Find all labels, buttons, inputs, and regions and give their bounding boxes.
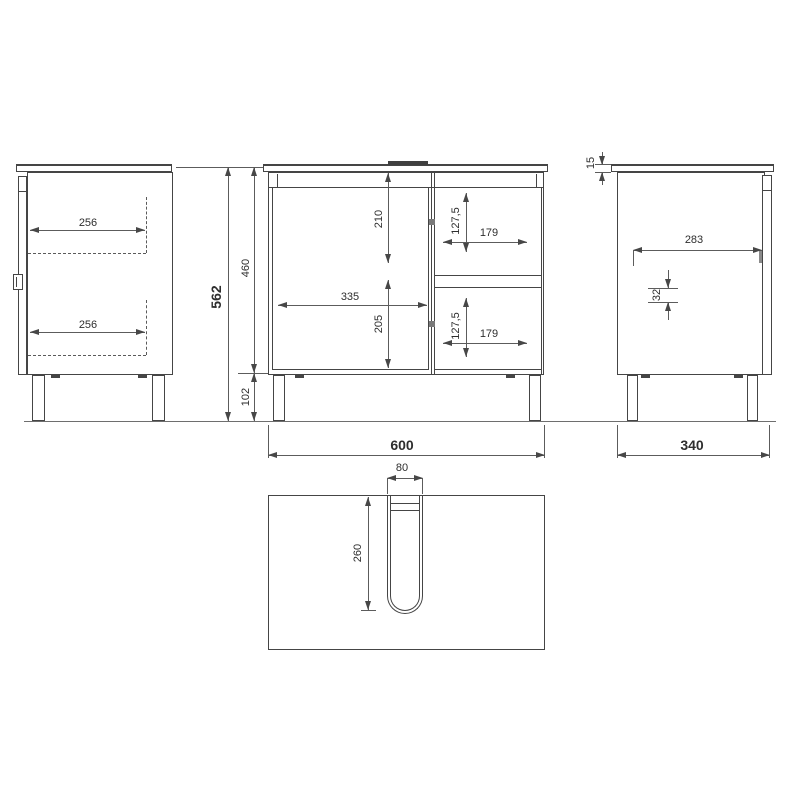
divider-line — [431, 172, 432, 375]
top-rail-tick — [536, 174, 537, 187]
countertop — [611, 164, 774, 172]
door-handle — [13, 274, 23, 290]
cutout-wall-outer-left — [387, 495, 388, 594]
dim-arrow — [268, 452, 277, 458]
dim-arrow — [225, 167, 231, 176]
hinge-mark — [429, 321, 435, 327]
dim-label-460: 460 — [239, 246, 253, 290]
dim-arrow — [385, 280, 391, 289]
door-right-edge — [428, 187, 429, 370]
dim-arrow — [463, 193, 469, 202]
dim-line-256-top — [30, 230, 145, 231]
countertop — [16, 164, 172, 172]
dim-arrow — [385, 173, 391, 182]
door-edge-step — [762, 190, 772, 191]
dim-arrow — [761, 452, 770, 458]
cabinet-body — [27, 172, 173, 375]
dim-label-210: 210 — [372, 197, 386, 241]
dim-arrow — [385, 254, 391, 263]
foot-mark — [295, 375, 304, 378]
dim-label-335: 335 — [320, 290, 380, 304]
leg — [273, 375, 285, 421]
dim-line-283 — [633, 250, 762, 251]
dim-label-179-bottom: 179 — [464, 327, 514, 341]
ground-line — [24, 421, 776, 422]
cutout-wall-outer-right — [422, 495, 423, 594]
dim-line-205 — [388, 280, 389, 368]
dim-arrow — [463, 298, 469, 307]
drawer-top-hidden-line-h — [28, 253, 146, 254]
cutout-wall-inner-right — [419, 495, 420, 594]
door-edge-panel — [762, 175, 772, 375]
dim-arrow — [365, 601, 371, 610]
extension-line-283 — [633, 250, 634, 266]
dim-arrow — [518, 340, 527, 346]
dim-arrow — [365, 497, 371, 506]
drawer2-top-edge — [435, 287, 542, 288]
foot-mark — [734, 375, 743, 378]
leg — [152, 375, 165, 421]
dim-line-600 — [268, 455, 545, 456]
dim-label-256-bottom: 256 — [58, 318, 118, 332]
dim-line-210 — [388, 173, 389, 263]
dim-arrow — [599, 172, 605, 181]
drawer2-bottom-edge — [435, 369, 542, 370]
top-rail-line — [269, 187, 543, 188]
cutout-cross-line — [391, 503, 419, 504]
drawer-bottom-hidden-line-v — [146, 300, 147, 355]
door-bottom-edge — [272, 369, 429, 370]
dim-arrow — [753, 247, 762, 253]
dim-label-32: 32 — [650, 273, 664, 317]
dim-line-340 — [617, 455, 770, 456]
dim-arrow — [518, 239, 527, 245]
dim-arrow — [463, 243, 469, 252]
door-handle-line — [16, 277, 17, 287]
dim-label-260: 260 — [351, 531, 365, 575]
technical-drawing-canvas: 256 256 562 460 102 — [0, 0, 800, 800]
dim-label-127-top: 127,5 — [449, 199, 463, 243]
dim-arrow — [385, 359, 391, 368]
dim-line-460-102 — [254, 167, 255, 421]
drawer-right-edge — [541, 187, 542, 375]
foot-mark — [51, 375, 60, 378]
faucet-hole-mark — [388, 161, 428, 165]
dim-label-102: 102 — [239, 375, 253, 419]
dim-line-260 — [368, 497, 369, 610]
leg — [32, 375, 45, 421]
dim-label-562: 562 — [208, 275, 224, 319]
countertop — [263, 164, 548, 172]
dim-arrow — [665, 279, 671, 288]
dim-label-600: 600 — [372, 437, 432, 453]
bottom-panel — [268, 495, 545, 650]
foot-mark — [506, 375, 515, 378]
dim-label-205: 205 — [372, 302, 386, 346]
extension-line-top — [176, 167, 263, 168]
dim-label-15: 15 — [584, 141, 598, 185]
foot-mark — [138, 375, 147, 378]
dim-arrow — [225, 412, 231, 421]
dim-arrow — [633, 247, 642, 253]
dim-arrow — [418, 302, 427, 308]
dim-line-179-bottom — [443, 343, 527, 344]
dim-arrow — [136, 227, 145, 233]
dim-label-283: 283 — [664, 233, 724, 247]
foot-mark — [641, 375, 650, 378]
extension-line-260 — [361, 610, 376, 611]
dim-arrow — [665, 302, 671, 311]
dim-label-179-top: 179 — [464, 226, 514, 240]
leg — [529, 375, 541, 421]
dim-label-80: 80 — [382, 461, 422, 475]
extension-line-80-right — [422, 478, 423, 494]
top-rail-tick — [277, 174, 278, 187]
dim-arrow — [443, 239, 452, 245]
dim-arrow — [599, 156, 605, 165]
cutout-cross-line — [391, 510, 419, 511]
cabinet-body — [268, 172, 544, 375]
dim-line-335 — [278, 305, 427, 306]
dim-arrow — [278, 302, 287, 308]
dim-arrow — [251, 167, 257, 176]
dim-arrow — [251, 364, 257, 373]
dim-line-256-bottom — [30, 332, 145, 333]
leg — [747, 375, 758, 421]
drawer-bottom-hidden-line-h — [28, 355, 146, 356]
drawer1-bottom-edge — [435, 275, 542, 276]
door-edge-step — [18, 191, 27, 192]
drawer-top-hidden-line-v — [146, 197, 147, 253]
extension-line-80-left — [387, 478, 388, 494]
dim-arrow — [617, 452, 626, 458]
door-left-edge — [272, 187, 273, 370]
dim-label-340: 340 — [662, 437, 722, 453]
dim-arrow — [30, 227, 39, 233]
cabinet-body — [617, 172, 765, 375]
dim-arrow — [387, 475, 396, 481]
dim-arrow — [536, 452, 545, 458]
dim-arrow — [30, 329, 39, 335]
hinge-mark — [429, 219, 435, 225]
dim-arrow — [463, 348, 469, 357]
dim-line-562 — [228, 167, 229, 421]
dim-arrow — [443, 340, 452, 346]
dim-arrow — [136, 329, 145, 335]
leg — [627, 375, 638, 421]
dim-line-179-top — [443, 242, 527, 243]
dim-label-256-top: 256 — [58, 216, 118, 230]
divider-line — [434, 172, 435, 375]
